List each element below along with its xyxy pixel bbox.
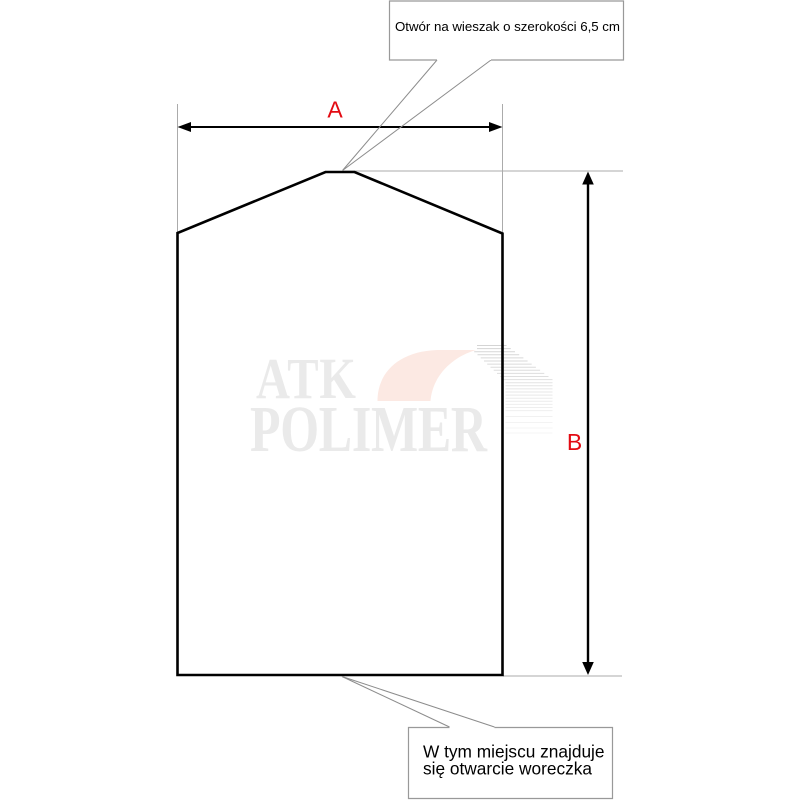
svg-text:A: A <box>327 97 343 123</box>
svg-text:POLIMER: POLIMER <box>250 393 488 466</box>
svg-text:B: B <box>567 429 582 455</box>
svg-text:się otwarcie woreczka: się otwarcie woreczka <box>423 759 592 779</box>
svg-text:Otwór na wieszak o szerokości: Otwór na wieszak o szerokości 6,5 cm <box>395 19 620 34</box>
